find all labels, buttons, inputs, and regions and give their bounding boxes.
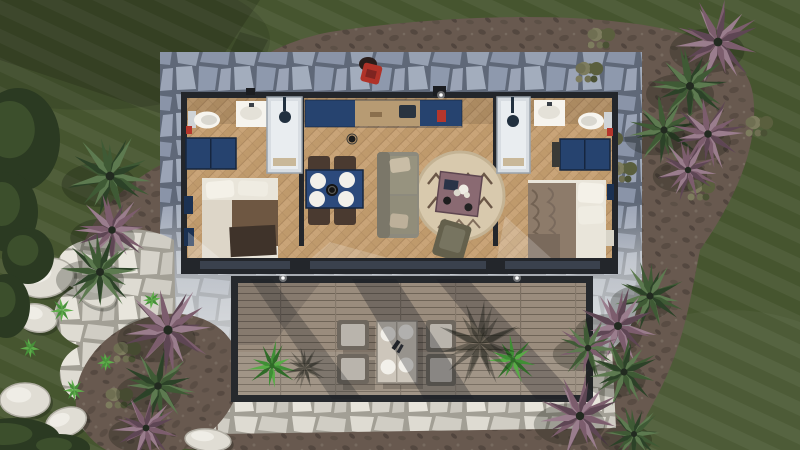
wall-light <box>281 276 285 280</box>
plant-center <box>108 226 116 234</box>
plant-center <box>704 130 712 138</box>
shower <box>267 97 302 173</box>
plant-center <box>154 382 162 390</box>
pillow <box>578 205 605 224</box>
counter-sink <box>399 105 416 118</box>
shrub-tuft <box>619 176 626 183</box>
coffee-machine <box>437 110 446 122</box>
shrub-tuft <box>624 175 631 182</box>
glass-door <box>505 261 600 269</box>
book <box>443 179 458 191</box>
plant-center <box>620 368 627 375</box>
shower <box>497 97 530 173</box>
plate <box>338 191 354 207</box>
pillow <box>205 180 234 199</box>
shrub-tuft <box>688 193 695 200</box>
glass-sliding-door <box>310 261 486 269</box>
sofa-pillow <box>389 213 408 229</box>
pillow <box>238 180 269 197</box>
shrub-tuft <box>123 356 130 363</box>
shrub-tuft <box>106 401 113 408</box>
shrub-tuft <box>760 129 767 136</box>
wall-light <box>515 276 519 280</box>
house <box>181 86 618 274</box>
floor-drain <box>349 136 356 143</box>
glass-door <box>200 261 290 269</box>
shrub-tuft <box>575 63 585 73</box>
shrub-tuft <box>585 76 592 83</box>
scene-svg <box>0 0 800 450</box>
boulder-highlight <box>6 387 31 402</box>
kitchen-cabinet <box>305 100 355 127</box>
red-accessory <box>607 128 613 136</box>
deck <box>231 276 593 402</box>
shrub-tuft <box>105 389 115 399</box>
plant-center <box>660 126 667 133</box>
shrub-tuft <box>597 42 604 49</box>
dining-set <box>306 156 363 225</box>
pillow <box>577 182 604 204</box>
right-bed <box>528 180 614 258</box>
sofa-pillow <box>389 157 411 174</box>
shrub-tuft <box>697 194 704 201</box>
shrub-tuft <box>590 75 597 82</box>
plant-center <box>510 357 515 362</box>
plant-center <box>614 322 622 330</box>
aerial-render-canvas <box>0 0 800 450</box>
plate <box>309 191 325 207</box>
shrub-tuft <box>602 28 615 41</box>
plant-center <box>163 325 172 334</box>
shrub-tuft <box>587 29 597 39</box>
shrub-tuft <box>745 117 755 127</box>
roof-vent <box>246 88 255 95</box>
shrub-tuft <box>702 193 709 200</box>
shrub-tuft <box>624 162 637 175</box>
dining-chair <box>334 206 356 225</box>
plant-center <box>685 167 691 173</box>
coffee-table <box>436 172 483 217</box>
shrub-tuft <box>755 130 762 137</box>
shrub-tuft <box>602 41 609 48</box>
shower-head <box>507 115 519 127</box>
nightstand <box>184 196 193 214</box>
nightstand <box>606 230 614 246</box>
shrub-tuft <box>760 116 773 129</box>
plate <box>381 360 396 375</box>
plate <box>310 173 326 189</box>
plant-center <box>96 268 104 276</box>
dark-throw <box>229 225 277 257</box>
plant-center <box>143 425 150 432</box>
plant-center <box>106 172 115 181</box>
plant-center <box>631 431 637 437</box>
shrub-tuft <box>588 41 595 48</box>
plant-center <box>714 38 723 47</box>
nightstand <box>607 184 614 200</box>
edge-foliage-highlight <box>7 235 38 266</box>
shrub-tuft <box>746 129 753 136</box>
plate <box>339 172 355 188</box>
plant-center <box>269 363 274 368</box>
sofa <box>377 152 419 238</box>
red-accessory <box>186 126 192 134</box>
plant-center <box>646 292 653 299</box>
centerpiece <box>326 184 338 196</box>
plant-center <box>585 345 591 351</box>
plant-center <box>576 412 584 420</box>
shrub-tuft <box>114 355 121 362</box>
shower-head <box>279 111 291 123</box>
shrub-tuft <box>590 62 603 75</box>
wall-light <box>439 93 443 97</box>
shrub-tuft <box>576 75 583 82</box>
plant-center <box>686 82 694 90</box>
dining-chair <box>308 206 330 225</box>
